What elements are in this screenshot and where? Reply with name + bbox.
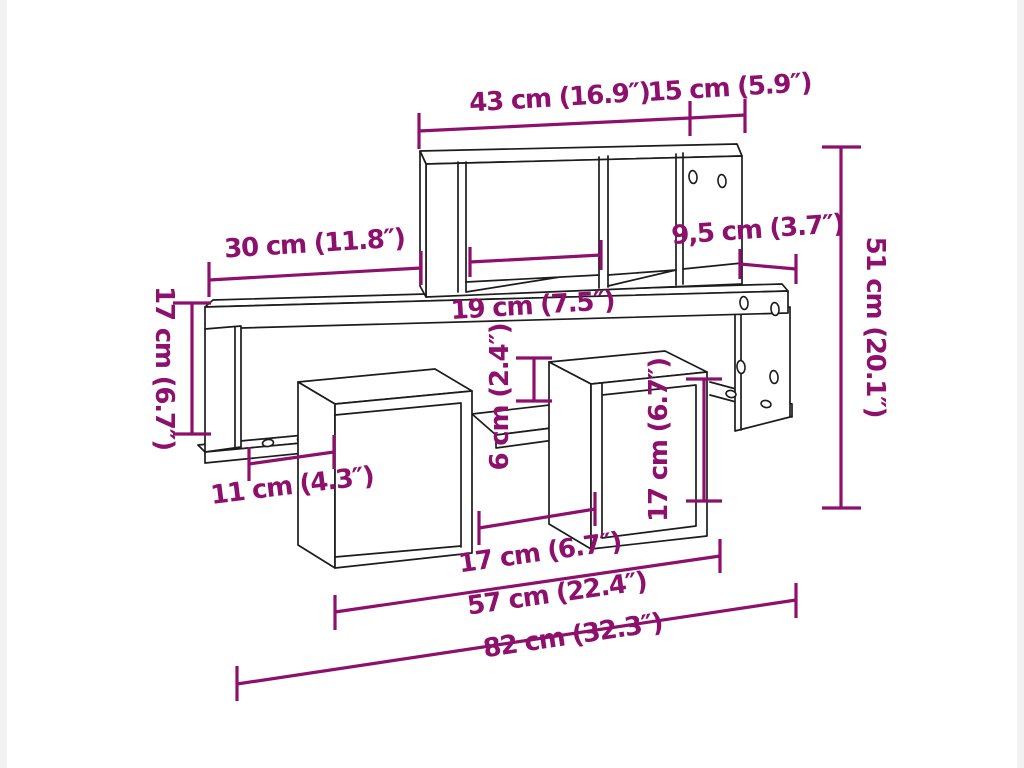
dim-left-height-label: 17 cm (6.7″): [149, 286, 179, 450]
dim-right-depth-line: [740, 249, 796, 284]
dim-opening-height-label: 6 cm (2.4″): [485, 324, 515, 471]
dim-left-height: 17 cm (6.7″): [149, 286, 211, 450]
dim-top-depth: 15 cm (5.9″): [647, 68, 812, 133]
right-cube-left-face: [549, 362, 591, 549]
right-edge-strip: [1017, 0, 1024, 768]
dim-opening-height-line: [516, 358, 552, 401]
left-edge-strip: [0, 0, 7, 768]
wall-shelf-diagram: 43 cm (16.9″) 15 cm (5.9″) 30 cm (11.8″)…: [0, 0, 1024, 768]
screw-hole: [770, 302, 779, 316]
dim-top-depth-label: 15 cm (5.9″): [647, 68, 812, 108]
dim-opening-height: 6 cm (2.4″): [485, 324, 552, 471]
dim-top-width-label: 43 cm (16.9″): [468, 78, 650, 119]
screw-hole: [739, 296, 748, 310]
dim-total-height: 51 cm (20.1″): [822, 147, 890, 508]
dim-total-height-label: 51 cm (20.1″): [860, 237, 890, 418]
diagram-canvas: 43 cm (16.9″) 15 cm (5.9″) 30 cm (11.8″)…: [0, 0, 1024, 768]
dim-total-width-label: 82 cm (32.3″): [481, 608, 664, 664]
screw-hole: [688, 170, 697, 184]
screw-hole: [717, 174, 726, 188]
screw-hole: [769, 370, 778, 384]
dim-cube-height-label: 17 cm (6.7″): [644, 358, 674, 522]
dim-total-height-line: [822, 147, 861, 508]
screw-hole: [736, 360, 745, 374]
dim-bottom-gap-width-label: 17 cm (6.7″): [457, 527, 623, 580]
dim-upper-left-width: 30 cm (11.8″): [209, 224, 421, 297]
right-cube: [549, 351, 707, 549]
dim-upper-left-width-label: 30 cm (11.8″): [223, 224, 405, 265]
right-back-panel: [725, 307, 790, 431]
